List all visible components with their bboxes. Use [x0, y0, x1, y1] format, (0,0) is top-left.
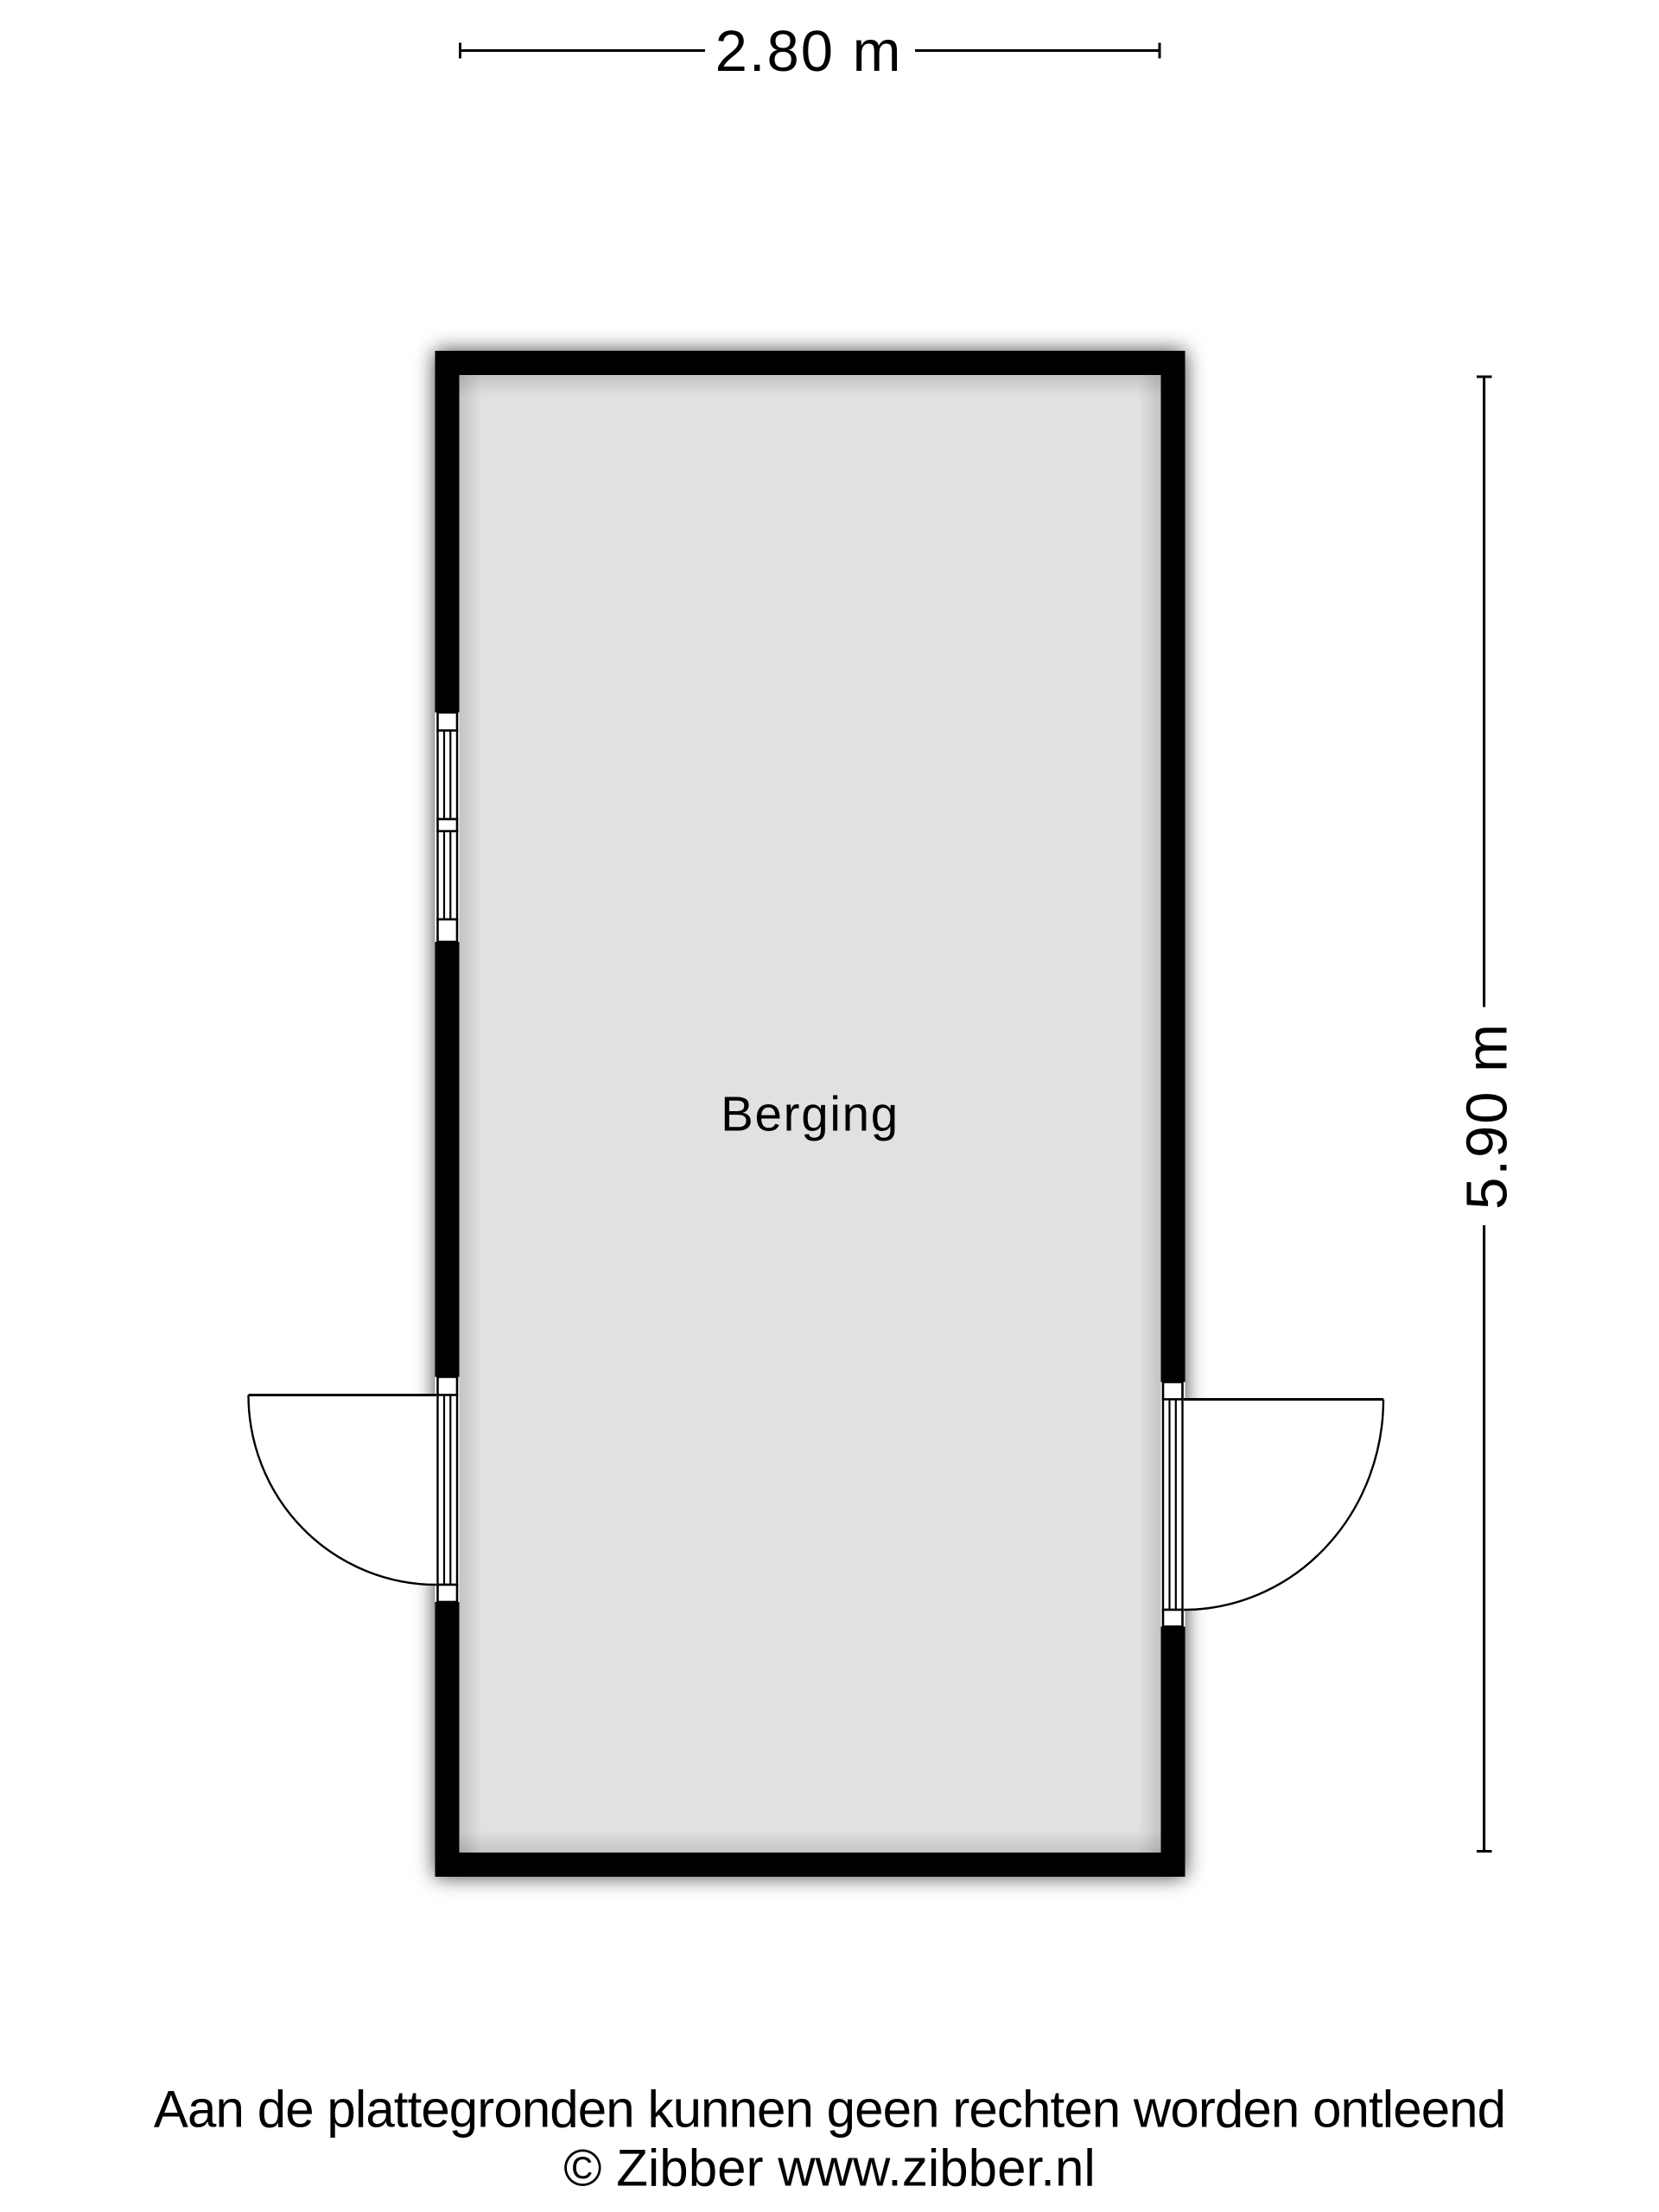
- svg-text:Aan de plattegronden kunnen ge: Aan de plattegronden kunnen geen rechten…: [154, 2081, 1505, 2139]
- svg-text:5.90 m: 5.90 m: [1455, 1022, 1520, 1210]
- svg-text:Berging: Berging: [721, 1087, 899, 1141]
- svg-text:© Zibber www.zibber.nl: © Zibber www.zibber.nl: [563, 2139, 1096, 2197]
- svg-text:2.80 m: 2.80 m: [715, 19, 903, 84]
